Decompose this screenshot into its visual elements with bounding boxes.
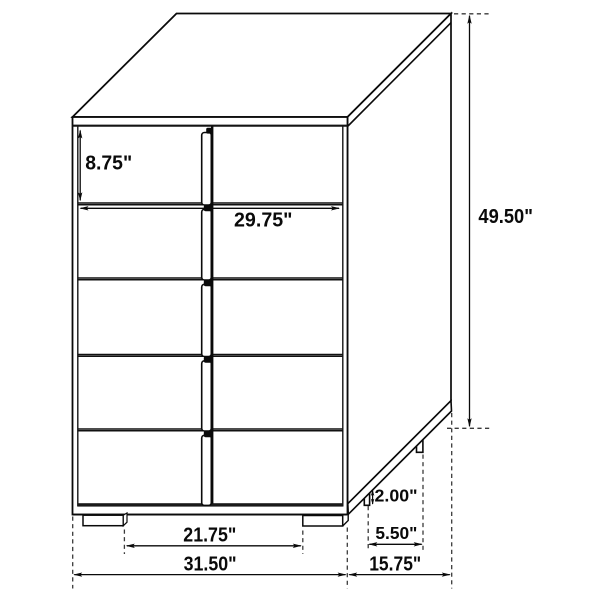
svg-text:2.00": 2.00" [375,485,418,505]
svg-text:49.50": 49.50" [478,206,533,228]
svg-text:5.50": 5.50" [375,523,417,543]
svg-text:15.75": 15.75" [369,554,421,576]
svg-text:31.50": 31.50" [184,554,237,576]
svg-text:29.75": 29.75" [234,210,293,232]
svg-text:8.75": 8.75" [85,153,132,175]
svg-text:21.75": 21.75" [183,524,236,546]
